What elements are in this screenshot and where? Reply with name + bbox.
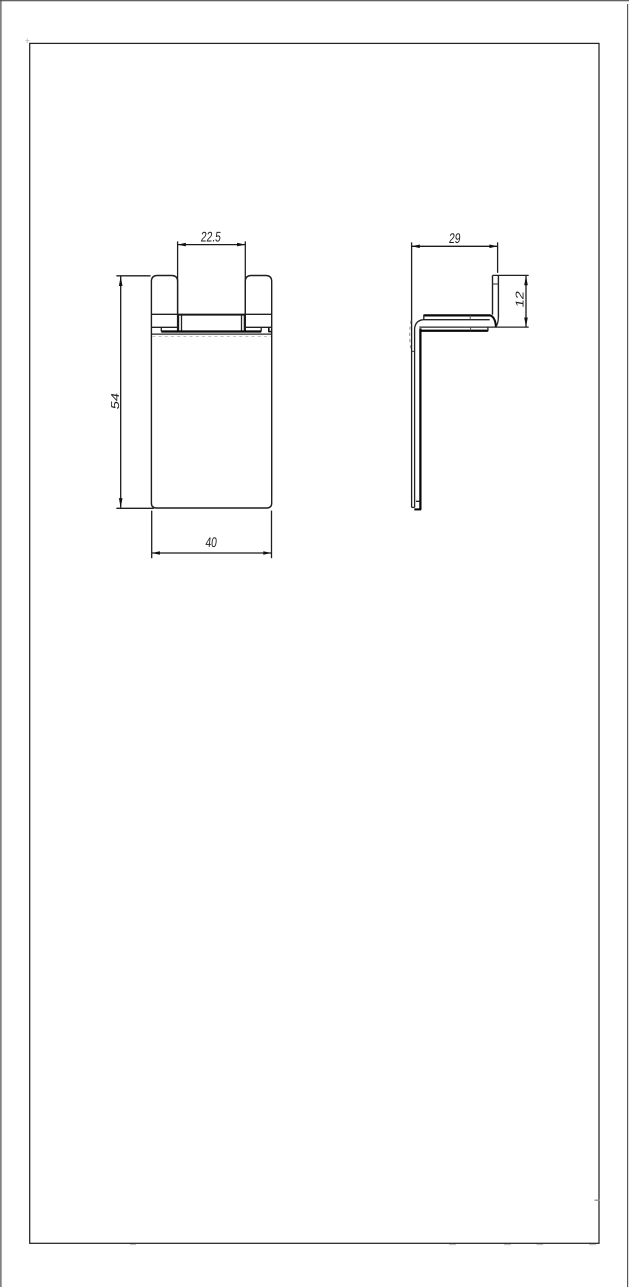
svg-text:40: 40 <box>205 536 218 551</box>
svg-text:54: 54 <box>110 391 122 410</box>
svg-text:12: 12 <box>515 290 527 309</box>
svg-text:29: 29 <box>448 232 461 247</box>
svg-text:22.5: 22.5 <box>200 231 222 246</box>
